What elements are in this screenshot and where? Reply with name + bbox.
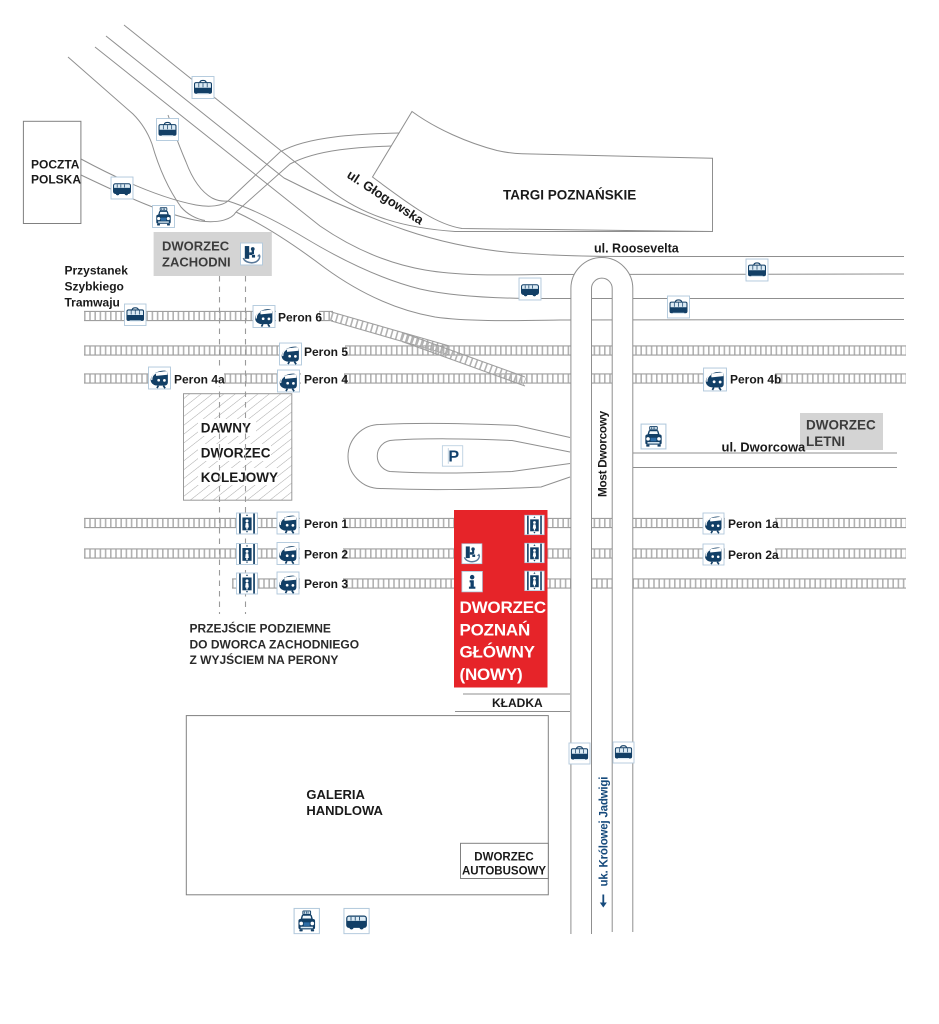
svg-text:AUTOBUSOWY: AUTOBUSOWY: [462, 866, 546, 878]
svg-text:uk. Królowej Jadwigi: uk. Królowej Jadwigi: [599, 777, 611, 887]
svg-text:LETNI: LETNI: [806, 434, 845, 449]
svg-text:DAWNY: DAWNY: [201, 421, 251, 436]
svg-text:Peron 4b: Peron 4b: [730, 373, 781, 387]
svg-text:Peron 1a: Peron 1a: [728, 517, 779, 531]
svg-text:Peron 6: Peron 6: [278, 311, 322, 325]
svg-text:GALERIA: GALERIA: [306, 787, 365, 802]
svg-text:Peron 5: Peron 5: [304, 345, 348, 359]
svg-text:TARGI POZNAŃSKIE: TARGI POZNAŃSKIE: [503, 188, 636, 203]
svg-text:Most Dworcowy: Most Dworcowy: [596, 410, 610, 497]
svg-text:Peron 2: Peron 2: [304, 548, 348, 562]
svg-text:Szybkiego: Szybkiego: [65, 280, 124, 294]
svg-text:(NOWY): (NOWY): [460, 665, 523, 684]
svg-text:POZNAŃ: POZNAŃ: [460, 620, 531, 639]
svg-text:Peron 4a: Peron 4a: [174, 373, 225, 387]
svg-text:Peron 2a: Peron 2a: [728, 548, 779, 562]
svg-text:Peron 1: Peron 1: [304, 517, 348, 531]
svg-text:GŁÓWNY: GŁÓWNY: [460, 643, 536, 662]
svg-text:DWORZEC: DWORZEC: [806, 418, 876, 433]
svg-text:Tramwaju: Tramwaju: [65, 296, 120, 310]
svg-text:KŁADKA: KŁADKA: [492, 696, 543, 710]
svg-text:POCZTA: POCZTA: [31, 158, 80, 172]
svg-text:DWORZEC: DWORZEC: [460, 598, 546, 617]
svg-text:HANDLOWA: HANDLOWA: [306, 803, 383, 818]
svg-text:ul. Dworcowa: ul. Dworcowa: [722, 440, 807, 455]
svg-text:DO DWORCA ZACHODNIEGO: DO DWORCA ZACHODNIEGO: [190, 637, 360, 651]
svg-text:Przystanek: Przystanek: [65, 264, 129, 278]
svg-text:Z WYJŚCIEM NA PERONY: Z WYJŚCIEM NA PERONY: [190, 652, 339, 667]
svg-text:PRZEJŚCIE PODZIEMNE: PRZEJŚCIE PODZIEMNE: [190, 621, 331, 636]
svg-text:DWORZEC: DWORZEC: [201, 446, 271, 461]
svg-text:Peron 3: Peron 3: [304, 577, 348, 591]
svg-text:DWORZEC: DWORZEC: [162, 239, 230, 254]
svg-text:KOLEJOWY: KOLEJOWY: [201, 470, 278, 485]
svg-text:ZACHODNI: ZACHODNI: [162, 255, 231, 270]
svg-text:Peron 4: Peron 4: [304, 373, 348, 387]
svg-text:DWORZEC: DWORZEC: [474, 852, 533, 864]
svg-text:POLSKA: POLSKA: [31, 173, 81, 187]
svg-text:ul. Roosevelta: ul. Roosevelta: [594, 242, 680, 256]
